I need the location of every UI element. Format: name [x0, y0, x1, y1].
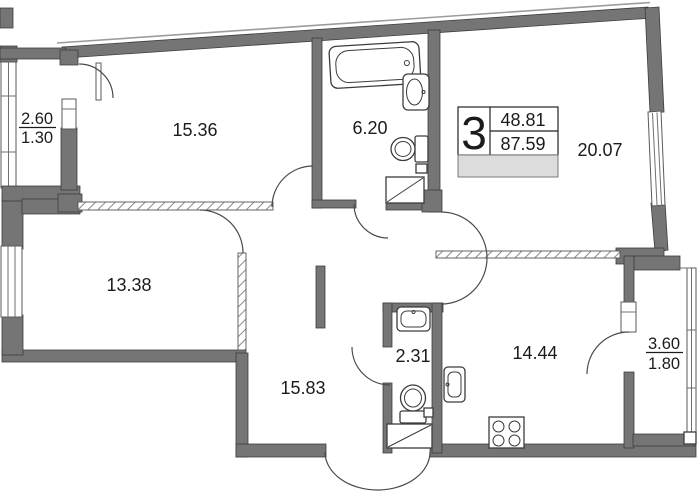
bathroom-bottom-wall-left	[312, 200, 356, 208]
kitchen-sink	[444, 367, 465, 402]
left-wall-lower	[2, 315, 23, 355]
label-balcony-left-reduced: 1.30	[21, 129, 53, 147]
label-living: 20.07	[577, 140, 622, 160]
right-wall-lower	[651, 202, 668, 252]
door-arc-balcony-right	[587, 332, 629, 374]
bathroom-toilet	[391, 136, 428, 173]
neighbor-wall-stub	[0, 8, 13, 28]
partition-room1338	[238, 253, 246, 350]
right-wall-upper	[645, 7, 664, 113]
door-arc-bathroom	[354, 204, 388, 238]
wc-toilet-tank	[400, 411, 426, 423]
kitchen-right-wall	[621, 256, 636, 448]
wc-left-wall-upper	[383, 303, 392, 347]
balcony-right-top-wall	[634, 256, 680, 270]
wc-small-box	[424, 408, 433, 417]
bathroom-small-box	[416, 164, 427, 173]
kitchen-balcony-window	[621, 302, 636, 332]
room-13-bottom-wall	[2, 350, 246, 362]
balcony-left-column-top	[60, 50, 78, 65]
wc-toilet	[400, 385, 433, 423]
partition-kitchen-living	[436, 251, 620, 258]
bottom-wall-left	[236, 444, 326, 457]
label-bathroom: 6.20	[352, 118, 387, 138]
info-box: 3 48.81 87.59	[458, 107, 558, 177]
door-arc-room1338	[200, 210, 243, 253]
door-arc-entrance	[325, 452, 430, 490]
label-kitchen: 14.44	[512, 343, 557, 363]
bathroom-right-wall	[428, 30, 440, 212]
bathroom-sink	[403, 74, 429, 110]
info-rooms-count: 3	[461, 107, 487, 159]
bathroom-toilet-tank	[415, 136, 428, 162]
label-balcony-left-full: 2.60	[21, 110, 53, 128]
bathroom-corner-block	[422, 190, 442, 212]
door-arc-wc	[352, 347, 390, 385]
label-room-1338: 13.38	[106, 275, 151, 295]
hallway-column	[316, 266, 325, 328]
floor-plan: 3 48.81 87.59 15.36 6.20 20.07 13.38 15.…	[0, 0, 700, 497]
left-window	[1, 246, 22, 317]
wc-right-wall	[432, 303, 442, 453]
label-balcony-right-full: 3.60	[648, 335, 680, 353]
balcony-left-top-wall	[0, 48, 66, 59]
floor-plan-drawing: 3 48.81 87.59 15.36 6.20 20.07 13.38 15.…	[0, 0, 700, 497]
balcony-right-corner-post	[684, 432, 696, 444]
bathroom-left-wall	[312, 38, 322, 208]
partition-room1536	[78, 202, 273, 210]
label-balcony-right-reduced: 1.80	[648, 355, 680, 373]
door-arc-room1536	[272, 166, 313, 207]
left-wall-upper	[2, 199, 23, 249]
label-wc: 2.31	[395, 346, 430, 366]
balcony-left-column-window	[62, 99, 76, 129]
planned-partitions	[78, 202, 620, 350]
kitchen-wall-lower	[624, 372, 634, 448]
stove	[489, 417, 524, 448]
kitchen-wall-upper	[624, 256, 634, 304]
wc-sink	[397, 307, 430, 331]
balcony-left-column-wall	[61, 128, 77, 190]
info-total-area: 87.59	[500, 134, 545, 154]
hall-left-wall	[236, 353, 248, 457]
label-hallway: 15.83	[280, 378, 325, 398]
balcony-left-structure	[0, 46, 113, 214]
label-room-1536: 15.36	[172, 120, 217, 140]
info-living-area: 48.81	[500, 110, 545, 130]
